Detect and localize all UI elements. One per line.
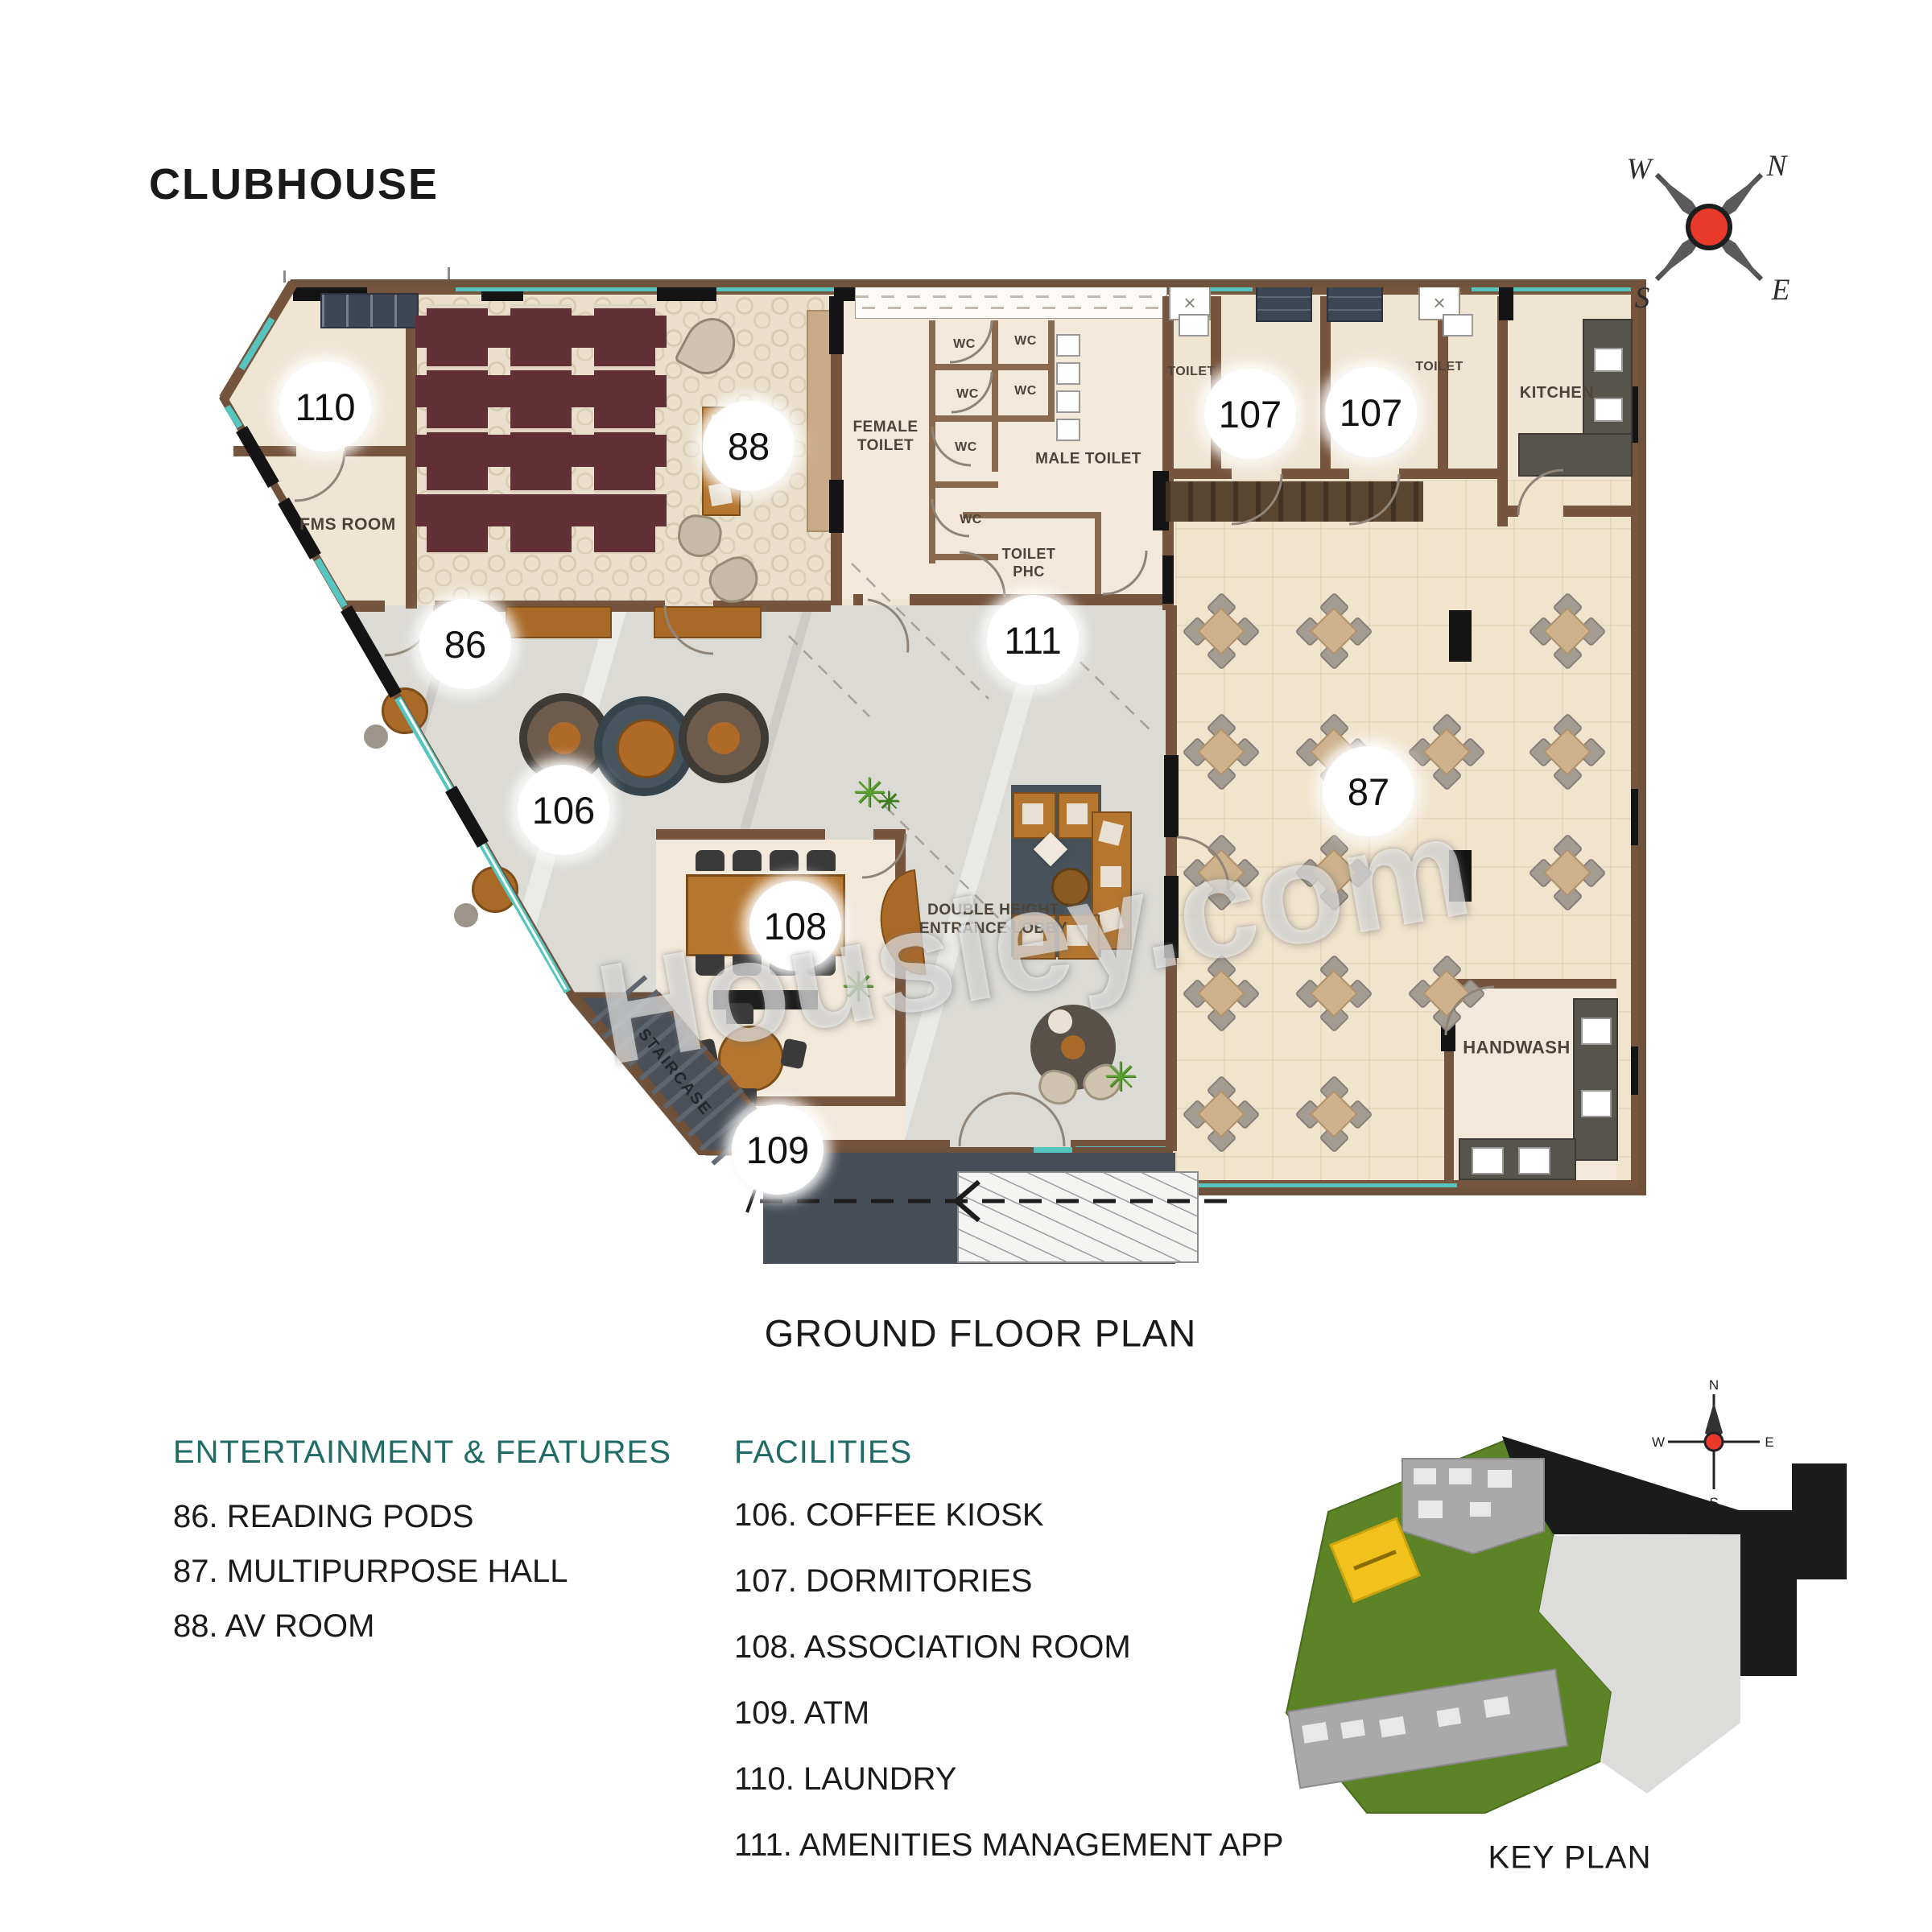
entrance-ramp — [958, 1172, 1198, 1262]
wall-black — [1631, 386, 1642, 443]
wc-label: WC — [1014, 383, 1037, 399]
sink — [1594, 348, 1623, 372]
legend-facilities-heading: FACILITIES — [734, 1435, 912, 1471]
wall — [1563, 506, 1642, 517]
legend-entertainment-heading: ENTERTAINMENT & FEATURES — [173, 1435, 671, 1471]
dim-tick — [283, 270, 286, 283]
glass-window — [456, 285, 657, 291]
marker-88: 88 — [703, 401, 795, 491]
wc-label: WC — [955, 440, 977, 456]
pod-desk — [654, 494, 667, 526]
wall — [1174, 469, 1232, 479]
cafe-chair — [364, 724, 388, 749]
plan-caption: GROUND FLOOR PLAN — [765, 1311, 1197, 1356]
column — [1449, 610, 1472, 662]
pod-desk — [583, 494, 596, 526]
glass-window — [1075, 1146, 1166, 1153]
wall — [1497, 296, 1508, 526]
table — [1543, 607, 1591, 654]
window-seat — [506, 606, 612, 638]
wc-partition — [929, 554, 998, 560]
urinal — [1056, 390, 1080, 413]
wc-partition — [929, 364, 1055, 370]
dining-table-set — [1536, 600, 1596, 659]
keyplan-building-lower — [1288, 1670, 1567, 1788]
glass-window — [1472, 285, 1631, 291]
handwash-counter — [1459, 1138, 1576, 1180]
page-title: CLUBHOUSE — [149, 159, 439, 209]
pod-desk — [499, 435, 512, 467]
kiosk-seat — [687, 701, 761, 775]
wc-label: WC — [960, 512, 982, 528]
room-label-handwash: HANDWASH — [1463, 1038, 1571, 1059]
marker-107-b: 107 — [1325, 367, 1417, 457]
table — [1197, 607, 1245, 654]
conference-chair — [696, 850, 724, 871]
wall-black — [1631, 789, 1642, 845]
wall — [656, 829, 825, 840]
locker-ledge — [855, 287, 1167, 319]
legend-item-108: 108. ASSOCIATION ROOM — [734, 1629, 1131, 1666]
wall — [233, 446, 296, 456]
sink — [1581, 1090, 1612, 1117]
legend-item-109: 109. ATM — [734, 1695, 869, 1732]
dining-table-set — [1190, 1083, 1249, 1142]
wall-black — [1499, 283, 1513, 320]
pod-desk — [570, 316, 583, 348]
cafe-table — [382, 687, 428, 734]
keyplan-compass-n: N — [1709, 1377, 1719, 1393]
wall-black — [829, 480, 844, 533]
room-label-female-toilet: FEMALE TOILET — [841, 418, 930, 455]
table — [1310, 1090, 1357, 1137]
room-label-male-toilet: MALE TOILET — [1035, 449, 1141, 468]
conference-chair — [770, 850, 799, 871]
key-plan-map: N E S W — [1286, 1377, 1847, 1813]
sink — [1443, 314, 1473, 336]
table — [1543, 728, 1591, 775]
pod-desk — [486, 435, 499, 467]
wall-black — [829, 296, 844, 354]
urinal — [1056, 362, 1080, 385]
sink — [1179, 314, 1209, 336]
urinal — [1056, 334, 1080, 357]
marker-110: 110 — [279, 361, 371, 452]
wc-partition — [992, 320, 998, 472]
reading-pod-row — [427, 304, 488, 554]
dim-tick — [448, 267, 450, 282]
marker-111: 111 — [987, 595, 1079, 685]
pod-desk — [415, 316, 428, 348]
pod-desk — [499, 316, 512, 348]
wall — [873, 829, 906, 840]
wall-black — [657, 282, 716, 301]
key-plan-label: KEY PLAN — [1488, 1840, 1652, 1876]
chair — [729, 1088, 757, 1108]
keyplan-road — [1502, 1436, 1847, 1676]
sink — [1581, 1018, 1612, 1045]
wc-partition — [963, 512, 1100, 518]
room-label-kitchen: KITCHEN — [1520, 383, 1594, 402]
wc-label: WC — [1014, 333, 1037, 349]
sink — [1518, 1147, 1550, 1174]
dining-table-set — [1536, 720, 1596, 780]
table — [1422, 728, 1470, 775]
plant-icon: ✳ — [1104, 1054, 1137, 1100]
keyplan-compass-e: E — [1765, 1435, 1773, 1450]
room-label-toilet-1: TOILET — [1167, 364, 1216, 380]
compass-w: W — [1627, 153, 1654, 186]
legend-item-87: 87. MULTIPURPOSE HALL — [173, 1554, 568, 1590]
shaft-x: × — [1433, 291, 1445, 316]
wc-partition — [1095, 512, 1101, 596]
plant-icon: ✳ — [877, 786, 901, 818]
compass-rose: N E S W — [1627, 150, 1790, 315]
keyplan-openground — [1539, 1534, 1740, 1794]
room-label-fms: FMS ROOM — [299, 514, 396, 535]
wall — [1282, 469, 1349, 479]
table — [1422, 969, 1470, 1017]
table — [1310, 607, 1357, 654]
wc-label: WC — [953, 336, 976, 353]
dormitory-bed — [1327, 282, 1383, 322]
pod-desk — [499, 375, 512, 407]
pod-desk — [499, 494, 512, 526]
wall — [1508, 506, 1518, 517]
pod-desk — [570, 435, 583, 467]
urinal — [1056, 419, 1080, 441]
kiosk-table — [708, 722, 740, 754]
wall — [853, 594, 863, 605]
legend-item-111: 111. AMENITIES MANAGEMENT APP — [734, 1827, 1283, 1864]
keyplan-building-upper — [1402, 1459, 1544, 1554]
kiosk-seat-ring — [679, 693, 769, 783]
cafe-table — [472, 866, 518, 913]
dormitory-bed — [1256, 282, 1312, 322]
conference-chair — [733, 850, 762, 871]
wall-black — [1162, 555, 1174, 604]
table — [1310, 969, 1357, 1017]
wc-label: WC — [956, 386, 979, 402]
keyplan-landscape — [1286, 1441, 1612, 1813]
compass-center — [1688, 206, 1730, 248]
wall — [1320, 296, 1331, 469]
window-seat — [654, 606, 762, 638]
marker-109: 109 — [732, 1104, 824, 1195]
compass-e: E — [1771, 274, 1790, 307]
keyplan-compass-s: S — [1709, 1495, 1718, 1510]
table — [1543, 848, 1591, 896]
sink — [1594, 398, 1623, 422]
cafe-chair — [454, 903, 478, 927]
dining-table-set — [1190, 720, 1249, 780]
legend-item-106: 106. COFFEE KIOSK — [734, 1497, 1044, 1534]
dining-table-set — [1302, 600, 1362, 659]
laundry-machines — [320, 293, 419, 328]
table — [1197, 1090, 1245, 1137]
wall — [345, 446, 417, 456]
handwash-counter — [1573, 998, 1618, 1161]
marker-107-a: 107 — [1204, 369, 1296, 459]
kiosk-table — [617, 719, 676, 778]
table — [1197, 728, 1245, 775]
entry-arrow-head — [956, 1182, 979, 1220]
wall — [1399, 469, 1497, 479]
pod-desk — [415, 494, 428, 526]
pod-desk — [583, 316, 596, 348]
dining-table-set — [1536, 841, 1596, 901]
keyplan-clubhouse-highlight — [1331, 1518, 1419, 1601]
legend-item-107: 107. DORMITORIES — [734, 1563, 1032, 1600]
room-label-toilet-phc: TOILET PHC — [997, 546, 1061, 581]
pod-desk — [654, 316, 667, 348]
feature-wall — [1166, 481, 1423, 522]
legend-item-110: 110. LAUNDRY — [734, 1761, 956, 1798]
floor-plan-page: × × — [0, 0, 1932, 1932]
glass-window — [1177, 1183, 1457, 1190]
legend-item-88: 88. AV ROOM — [173, 1608, 374, 1645]
dining-table-set — [1415, 962, 1475, 1022]
pod-desk — [486, 316, 499, 348]
kiosk-table — [548, 722, 580, 754]
compass-n: N — [1766, 150, 1789, 183]
wall — [345, 601, 385, 612]
pod-desk — [570, 375, 583, 407]
marker-106: 106 — [518, 765, 609, 855]
cushion — [1022, 803, 1043, 824]
dining-table-set — [1302, 1083, 1362, 1142]
pod-desk — [570, 494, 583, 526]
pod-desk — [415, 435, 428, 467]
wc-partition — [929, 320, 935, 563]
keyplan-compass: N E S W — [1652, 1377, 1774, 1510]
glass-window — [716, 285, 834, 291]
kiosk-seat — [602, 704, 686, 788]
wc-partition — [929, 415, 1055, 422]
kitchen-counter — [1518, 433, 1633, 477]
dining-table-set — [1190, 600, 1249, 659]
pod-desk — [486, 494, 499, 526]
wc-partition — [1048, 320, 1055, 420]
room-label-toilet-2: TOILET — [1415, 359, 1463, 375]
pod-desk — [654, 375, 667, 407]
legend-item-86: 86. READING PODS — [173, 1499, 473, 1535]
glass-window — [1207, 285, 1253, 291]
wc-partition — [929, 481, 998, 488]
wall-black — [1164, 755, 1179, 837]
round-lounge-table — [1061, 1035, 1085, 1059]
sink — [1472, 1147, 1504, 1174]
pod-desk — [583, 435, 596, 467]
pod-desk — [583, 375, 596, 407]
wall-black — [1631, 1046, 1642, 1095]
reading-pod-row — [594, 304, 655, 554]
cushion — [1067, 803, 1088, 824]
keyplan-compass-w: W — [1652, 1435, 1665, 1450]
pod-desk — [486, 375, 499, 407]
marker-86: 86 — [419, 599, 511, 689]
entrance-walkway — [763, 1153, 1175, 1264]
pod-desk — [654, 435, 667, 467]
conference-chair — [807, 850, 836, 871]
shaft-x: × — [1183, 291, 1195, 316]
reading-pod-row — [510, 304, 572, 554]
pod-desk — [415, 375, 428, 407]
dining-table-set — [1415, 720, 1475, 780]
